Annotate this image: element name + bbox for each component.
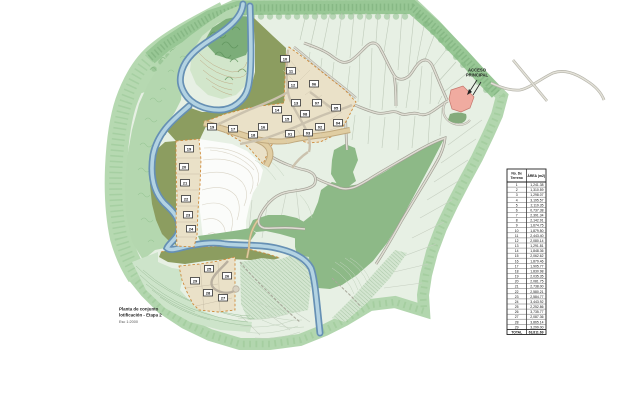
svg-text:2,035.35: 2,035.35 [530,275,543,279]
svg-text:06: 06 [312,82,317,87]
svg-text:29: 29 [515,325,519,329]
svg-text:1,674.75: 1,674.75 [530,224,543,228]
svg-text:15: 15 [285,117,290,122]
svg-text:14: 14 [515,249,519,253]
svg-text:14: 14 [275,108,280,113]
svg-text:08: 08 [303,112,308,117]
svg-text:5: 5 [516,203,518,207]
svg-text:07: 07 [315,101,320,106]
svg-text:1: 1 [516,183,518,187]
svg-text:10: 10 [515,229,519,233]
svg-text:Terreno: Terreno [511,176,523,180]
svg-text:03: 03 [306,131,311,136]
svg-text:3,735.77: 3,735.77 [530,310,543,314]
svg-text:24: 24 [189,227,194,232]
svg-text:1,298.07: 1,298.07 [530,193,543,197]
svg-text:2,443.40: 2,443.40 [530,234,543,238]
svg-text:2,142.91: 2,142.91 [530,219,543,223]
svg-text:19: 19 [187,147,192,152]
svg-text:16: 16 [515,259,519,263]
svg-text:2,584.77: 2,584.77 [530,295,543,299]
svg-text:4: 4 [516,198,518,202]
svg-text:27: 27 [221,296,226,301]
svg-text:2,062.62: 2,062.62 [530,254,543,258]
svg-text:2,119.35: 2,119.35 [531,203,544,207]
svg-text:ÁREA (m2): ÁREA (m2) [527,173,545,178]
svg-text:13: 13 [515,244,519,248]
svg-text:20: 20 [515,280,519,284]
svg-text:63,811.69: 63,811.69 [529,330,544,334]
svg-text:2,391.34: 2,391.34 [530,214,543,218]
svg-text:8: 8 [516,219,518,223]
svg-text:17: 17 [515,264,519,268]
svg-text:TOTAL: TOTAL [511,330,522,334]
svg-text:27: 27 [515,315,519,319]
svg-text:1,830.98: 1,830.98 [530,270,543,274]
svg-text:2,087.36: 2,087.36 [530,315,543,319]
svg-text:11: 11 [515,234,519,238]
svg-text:6: 6 [516,209,518,213]
svg-text:PRINCIPAL: PRINCIPAL [466,73,489,78]
svg-text:26: 26 [515,310,519,314]
svg-text:01: 01 [288,132,293,137]
svg-text:2,252.86: 2,252.86 [530,305,543,309]
svg-text:1,848.36: 1,848.36 [530,249,543,253]
svg-text:22: 22 [515,290,519,294]
svg-text:22: 22 [184,197,189,202]
svg-text:1,310.59: 1,310.59 [530,188,543,192]
svg-text:2,080.14: 2,080.14 [530,239,543,243]
svg-text:2,738.00: 2,738.00 [530,285,543,289]
svg-text:05: 05 [334,106,339,111]
svg-text:25: 25 [515,305,519,309]
svg-text:2: 2 [516,188,518,192]
svg-text:29: 29 [193,279,198,284]
svg-text:1,241.38: 1,241.38 [530,183,543,187]
svg-text:19: 19 [515,275,519,279]
svg-text:28: 28 [515,320,519,324]
svg-text:1,879.46: 1,879.46 [530,259,543,263]
svg-text:26: 26 [225,274,230,279]
svg-text:18: 18 [251,133,256,138]
svg-text:04: 04 [336,121,341,126]
svg-text:28: 28 [206,291,211,296]
svg-text:24: 24 [515,300,519,304]
svg-text:1,879.50: 1,879.50 [530,229,543,233]
svg-text:13: 13 [294,101,299,106]
svg-text:2,081.75: 2,081.75 [530,280,543,284]
svg-text:12: 12 [515,239,519,243]
svg-text:21: 21 [515,285,519,289]
svg-text:7: 7 [516,214,518,218]
svg-text:0,737.38: 0,737.38 [530,209,543,213]
svg-text:25: 25 [207,267,212,272]
svg-text:9: 9 [516,224,518,228]
svg-text:20: 20 [182,165,187,170]
svg-text:21: 21 [183,181,188,186]
svg-text:16: 16 [261,125,266,130]
svg-text:3: 3 [516,193,518,197]
svg-text:10: 10 [283,57,288,62]
svg-text:02: 02 [318,125,323,130]
svg-text:15: 15 [515,254,519,258]
svg-text:3,443.92: 3,443.92 [530,300,543,304]
svg-text:3,195.57: 3,195.57 [530,198,543,202]
svg-text:3,865.14: 3,865.14 [530,320,543,324]
svg-text:19: 19 [210,125,215,130]
svg-text:12: 12 [291,83,296,88]
svg-text:18: 18 [515,270,519,274]
svg-text:3,299.00: 3,299.00 [530,325,543,329]
svg-text:1,291.81: 1,291.81 [530,244,543,248]
svg-text:No. De: No. De [511,172,522,176]
svg-text:23: 23 [186,213,191,218]
svg-text:Planta de conjunto: Planta de conjunto [119,307,159,312]
svg-text:23: 23 [515,295,519,299]
svg-text:Esc 1:2000: Esc 1:2000 [119,320,138,324]
svg-text:17: 17 [231,127,236,132]
svg-text:1,905.77: 1,905.77 [530,264,543,268]
svg-text:2,580.21: 2,580.21 [530,290,543,294]
svg-text:lotificación - Etapa 2: lotificación - Etapa 2 [119,312,162,317]
